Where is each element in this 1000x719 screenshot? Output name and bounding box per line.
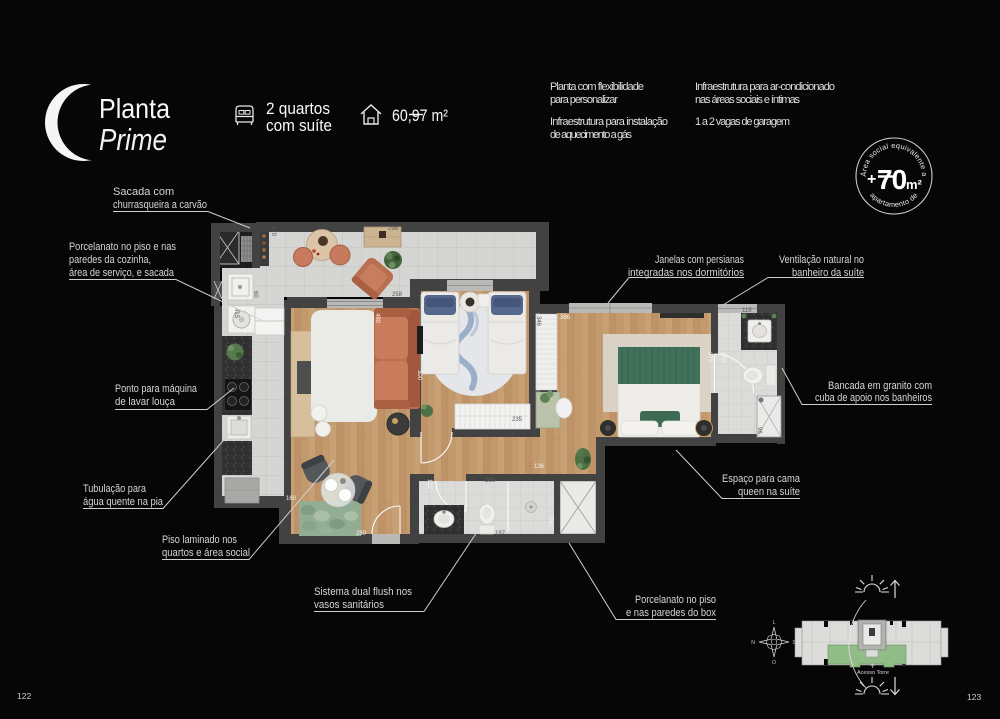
svg-text:187: 187 [495, 531, 506, 537]
svg-text:O: O [772, 660, 776, 666]
svg-text:Infraestrutura para instalação: Infraestrutura para instalação [550, 116, 668, 128]
svg-text:Tubulação para: Tubulação para [83, 483, 147, 495]
svg-text:Espaço para cama: Espaço para cama [722, 473, 801, 485]
svg-text:160: 160 [286, 496, 297, 502]
svg-text:N: N [751, 640, 755, 646]
svg-text:269: 269 [485, 478, 496, 484]
svg-text:nas áreas sociais e íntimas: nas áreas sociais e íntimas [695, 94, 801, 106]
svg-text:m²: m² [906, 177, 923, 192]
svg-text:122: 122 [426, 479, 432, 490]
svg-text:Ponto para máquina: Ponto para máquina [115, 383, 198, 395]
svg-text:96: 96 [756, 427, 762, 434]
svg-text:258: 258 [392, 292, 403, 298]
svg-text:123: 123 [967, 692, 981, 702]
svg-text:Piso laminado nos: Piso laminado nos [162, 534, 237, 546]
svg-text:+: + [867, 171, 876, 188]
svg-text:298: 298 [388, 226, 399, 232]
svg-text:Acesso Torre: Acesso Torre [857, 670, 889, 676]
svg-text:Sistema dual flush nos: Sistema dual flush nos [314, 586, 412, 598]
svg-text:Infraestrutura para ar-condici: Infraestrutura para ar-condicionado [695, 81, 835, 93]
svg-text:480: 480 [374, 313, 380, 324]
svg-text:e nas paredes do box: e nas paredes do box [626, 607, 716, 619]
svg-text:Ventilação natural no: Ventilação natural no [779, 254, 864, 266]
svg-text:300: 300 [416, 370, 422, 381]
svg-text:76: 76 [547, 517, 553, 524]
svg-text:de aquecimento a gás: de aquecimento a gás [550, 129, 633, 141]
svg-text:Porcelanato no piso e nas: Porcelanato no piso e nas [69, 241, 176, 253]
svg-text:Janelas com persianas: Janelas com persianas [655, 254, 744, 266]
svg-text:60,97 m²: 60,97 m² [392, 106, 448, 125]
svg-text:queen na suíte: queen na suíte [738, 486, 800, 498]
svg-text:273: 273 [706, 352, 712, 363]
svg-text:136: 136 [534, 464, 545, 470]
svg-text:com suíte: com suíte [266, 116, 332, 135]
svg-text:250: 250 [356, 531, 367, 537]
svg-text:235: 235 [512, 417, 523, 423]
svg-text:de lavar louça: de lavar louça [115, 396, 176, 408]
svg-text:Bancada em granito com: Bancada em granito com [828, 380, 932, 392]
svg-text:346: 346 [535, 316, 541, 327]
svg-text:Prime: Prime [99, 122, 167, 157]
svg-text:cuba de apoio nos banheiros: cuba de apoio nos banheiros [815, 392, 932, 404]
svg-text:122: 122 [17, 691, 31, 701]
svg-text:churrasqueira a carvão: churrasqueira a carvão [113, 199, 207, 211]
svg-text:Planta: Planta [99, 93, 170, 124]
svg-text:170: 170 [270, 226, 276, 237]
svg-text:270: 270 [719, 352, 725, 363]
svg-text:L: L [773, 620, 776, 626]
svg-text:paredes da cozinha,: paredes da cozinha, [69, 254, 151, 266]
svg-text:60: 60 [252, 291, 258, 298]
svg-text:386: 386 [560, 315, 571, 321]
svg-text:Sacada com: Sacada com [113, 186, 174, 198]
svg-text:água quente na pia: água quente na pia [83, 496, 164, 508]
svg-text:quartos e área social: quartos e área social [162, 547, 250, 559]
svg-text:119: 119 [742, 308, 752, 314]
svg-text:Porcelanato no piso: Porcelanato no piso [635, 594, 716, 606]
svg-text:Planta com flexibilidade: Planta com flexibilidade [550, 81, 644, 93]
svg-text:para personalizar: para personalizar [550, 94, 618, 106]
svg-text:70: 70 [877, 164, 907, 195]
svg-text:área de serviço, e sacada: área de serviço, e sacada [69, 267, 175, 279]
svg-text:1 a 2 vagas de garagem: 1 a 2 vagas de garagem [695, 116, 790, 128]
svg-text:vasos sanitários: vasos sanitários [314, 599, 384, 611]
